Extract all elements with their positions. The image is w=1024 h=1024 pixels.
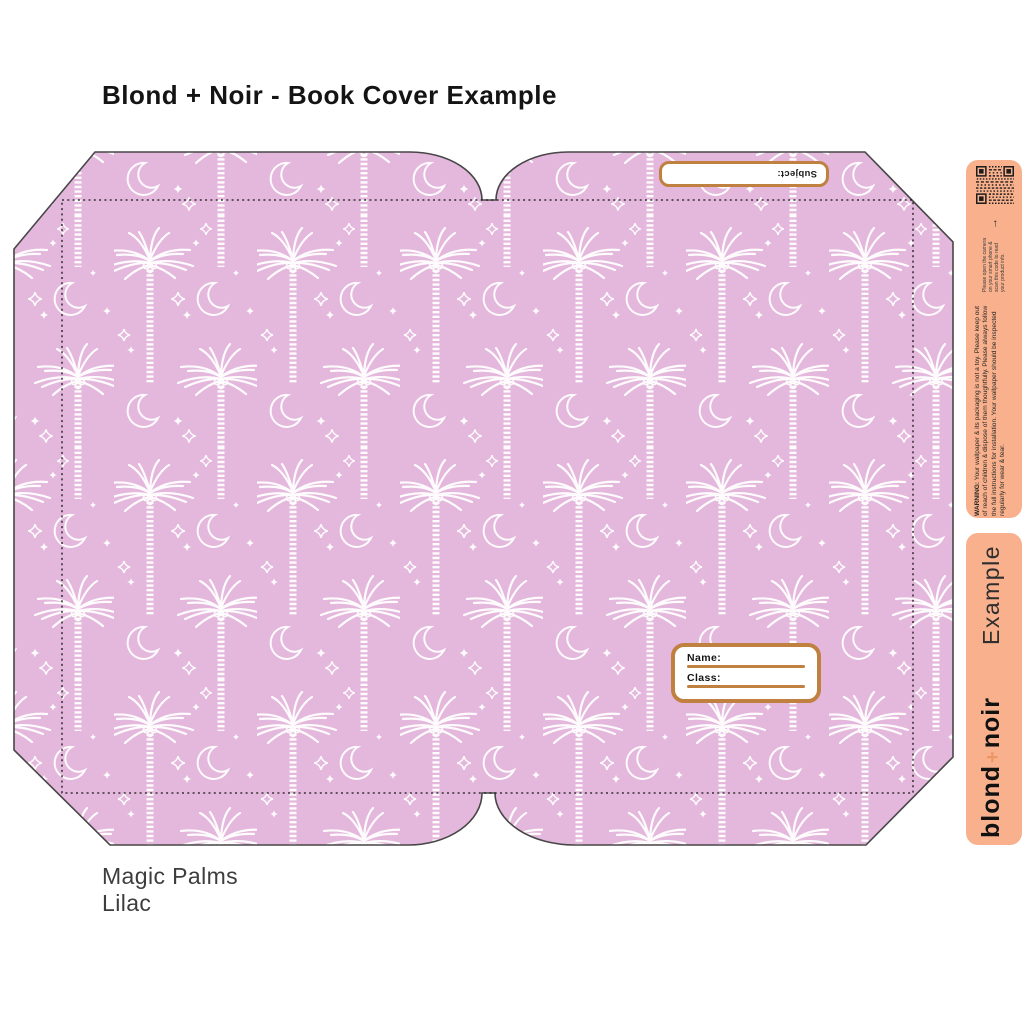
brand-wordmark-block: blond+noir Example xyxy=(977,545,1011,838)
subject-label: Subject: xyxy=(777,169,826,180)
scan-arrow-icon: → xyxy=(989,218,1000,229)
example-label: Example xyxy=(978,545,1005,645)
qr-code-icon xyxy=(976,166,1014,204)
name-class-label-box: Name: Class: xyxy=(671,643,821,703)
info-strip: Please open the camera on your smart pho… xyxy=(966,160,1022,518)
brand-word-blond: blond xyxy=(977,765,1005,838)
brand-plus-icon: + xyxy=(982,748,1004,765)
product-caption: Magic Palms Lilac xyxy=(102,863,238,917)
class-label: Class: xyxy=(687,672,805,684)
brand-strip: blond+noir Example xyxy=(966,533,1022,845)
subject-label-box: Subject: xyxy=(659,161,829,187)
qr-caption-block: Please open the camera on your smart pho… xyxy=(974,207,1014,292)
product-colorway: Lilac xyxy=(102,890,238,917)
product-name: Magic Palms xyxy=(102,863,238,890)
brand-wordmark: blond+noir xyxy=(977,697,1006,838)
qr-caption: Please open the camera on your smart pho… xyxy=(982,232,1007,292)
name-writing-line xyxy=(687,665,805,668)
name-label: Name: xyxy=(687,652,805,664)
brand-word-noir: noir xyxy=(977,697,1005,748)
book-cover-mockup: Blond + Noir - Book Cover Example xyxy=(0,0,1024,1024)
warning-prefix: WARNING: xyxy=(974,482,981,516)
cover-shape xyxy=(14,152,953,845)
warning-text: WARNING: Your wallpaper & its packaging … xyxy=(974,300,1012,516)
class-writing-line xyxy=(687,685,805,688)
